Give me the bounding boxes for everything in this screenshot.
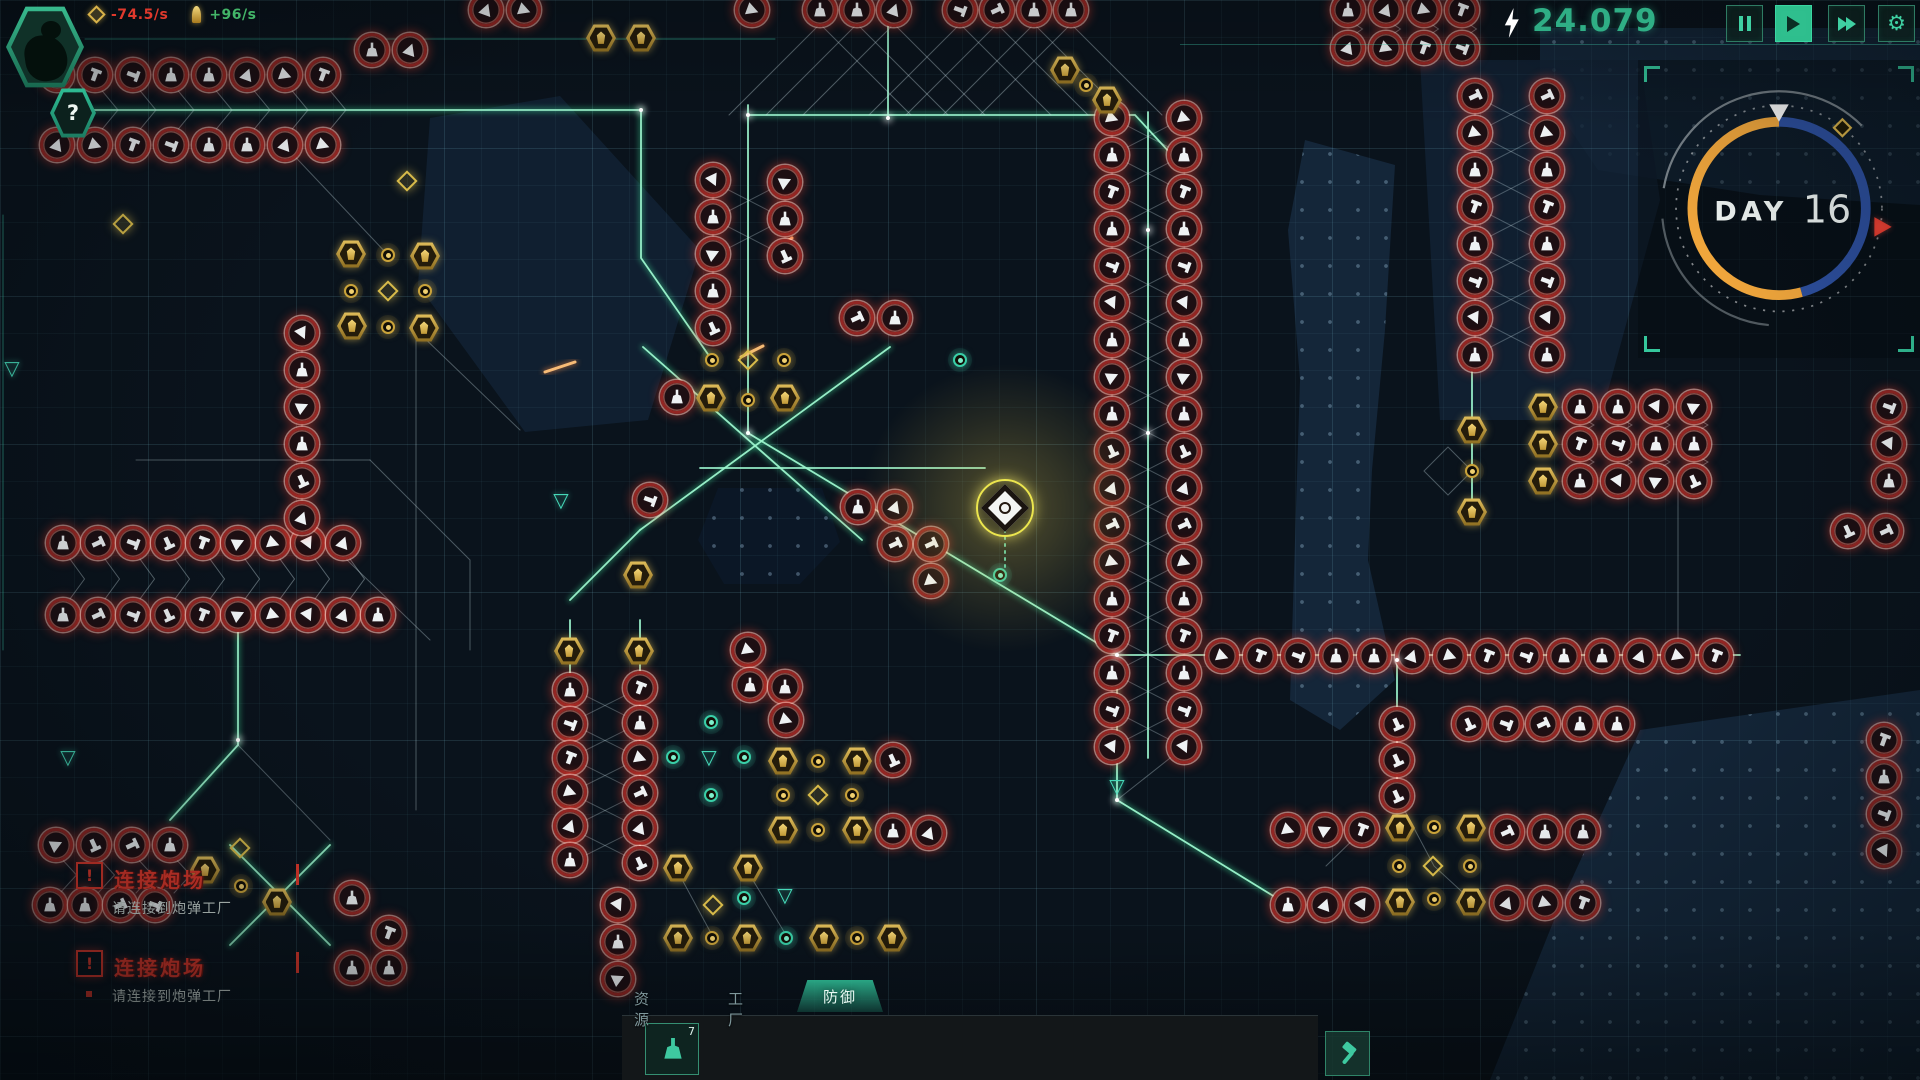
- mine-node[interactable]: [842, 746, 872, 776]
- turret-node[interactable]: [1677, 390, 1711, 424]
- mine-node[interactable]: [663, 853, 693, 883]
- mine-node[interactable]: [624, 636, 654, 666]
- turret-node[interactable]: [1167, 212, 1201, 246]
- ore-nugget-icon: [1466, 423, 1479, 437]
- mine-node[interactable]: [1457, 415, 1487, 445]
- turret-node[interactable]: [1433, 639, 1467, 673]
- turret-node[interactable]: [46, 526, 80, 560]
- turret-node[interactable]: [116, 526, 150, 560]
- turret-node[interactable]: [115, 828, 149, 862]
- turret-node[interactable]: [1095, 286, 1129, 320]
- mine-node[interactable]: [1385, 813, 1415, 843]
- turret-node[interactable]: [186, 598, 220, 632]
- turret-node[interactable]: [1380, 779, 1414, 813]
- turret-node[interactable]: [256, 526, 290, 560]
- mine-node[interactable]: [626, 23, 656, 53]
- turret-node[interactable]: [306, 58, 340, 92]
- turret-node[interactable]: [1281, 639, 1315, 673]
- turret-node[interactable]: [1530, 190, 1564, 224]
- turret-node[interactable]: [1167, 471, 1201, 505]
- turret-node[interactable]: [769, 703, 803, 737]
- turret-node[interactable]: [1528, 886, 1562, 920]
- turret-node[interactable]: [1407, 0, 1441, 27]
- mine-node[interactable]: [336, 239, 366, 269]
- turret-glyph-icon: [1683, 470, 1704, 491]
- turret-node[interactable]: [1458, 116, 1492, 150]
- relay-node-gold[interactable]: [1079, 78, 1093, 92]
- turret-node[interactable]: [1639, 427, 1673, 461]
- turret-node[interactable]: [1490, 886, 1524, 920]
- relay-node-gold[interactable]: [381, 320, 395, 334]
- turret-node[interactable]: [1167, 101, 1201, 135]
- turret-node[interactable]: [151, 598, 185, 632]
- turret-node[interactable]: [1095, 619, 1129, 653]
- turret-node[interactable]: [1167, 360, 1201, 394]
- turret-node[interactable]: [1452, 707, 1486, 741]
- turret-node[interactable]: [154, 128, 188, 162]
- turret-node[interactable]: [1563, 390, 1597, 424]
- turret-node[interactable]: [1308, 813, 1342, 847]
- relay-node-gold[interactable]: [811, 823, 825, 837]
- turret-node[interactable]: [1095, 323, 1129, 357]
- relay-node-gold[interactable]: [381, 248, 395, 262]
- turret-node[interactable]: [153, 828, 187, 862]
- mine-node[interactable]: [586, 23, 616, 53]
- turret-glyph-icon: [47, 135, 68, 156]
- ore-nugget-icon: [632, 568, 645, 582]
- warning-item[interactable]: ! 连接炮场 请连接到炮弹工厂: [76, 862, 406, 926]
- warning-item[interactable]: ! 连接炮场 请连接到炮弹工厂: [76, 950, 406, 1014]
- turret-node[interactable]: [696, 274, 730, 308]
- relay-node-gold[interactable]: [850, 931, 864, 945]
- turret-node[interactable]: [660, 380, 694, 414]
- relay-node-gold[interactable]: [418, 284, 432, 298]
- tab-defense[interactable]: 防御: [797, 980, 883, 1012]
- turret-node[interactable]: [1601, 390, 1635, 424]
- turret-node[interactable]: [1054, 0, 1088, 27]
- turret-node[interactable]: [1458, 79, 1492, 113]
- turret-node[interactable]: [1271, 888, 1305, 922]
- turret-node[interactable]: [1167, 619, 1201, 653]
- mine-node[interactable]: [1050, 55, 1080, 85]
- turret-glyph-icon: [161, 135, 182, 156]
- turret-node[interactable]: [326, 598, 360, 632]
- turret-node[interactable]: [285, 390, 319, 424]
- tab-resources[interactable]: 资源: [634, 988, 651, 1030]
- turret-node[interactable]: [768, 239, 802, 273]
- turret-glyph-icon: [1386, 749, 1407, 770]
- turret-node[interactable]: [1872, 427, 1906, 461]
- turret-glyph-icon: [163, 67, 179, 83]
- turret-node[interactable]: [192, 128, 226, 162]
- turret-node[interactable]: [601, 888, 635, 922]
- turret-node[interactable]: [39, 828, 73, 862]
- mine-node[interactable]: [1385, 887, 1415, 917]
- mine-node[interactable]: [1456, 887, 1486, 917]
- turret-node[interactable]: [469, 0, 503, 27]
- turret-node[interactable]: [943, 0, 977, 27]
- build-bar: 7: [622, 1015, 1318, 1080]
- turret-node[interactable]: [623, 741, 657, 775]
- turret-node[interactable]: [1017, 0, 1051, 27]
- turret-node[interactable]: [1319, 639, 1353, 673]
- turret-node[interactable]: [1458, 227, 1492, 261]
- turret-node[interactable]: [1639, 464, 1673, 498]
- turret-node[interactable]: [553, 707, 587, 741]
- tab-factory[interactable]: 工厂: [728, 988, 745, 1030]
- turret-node[interactable]: [1867, 723, 1901, 757]
- turret-node[interactable]: [1547, 639, 1581, 673]
- ore-nugget-icon: [1394, 821, 1407, 835]
- turret-node[interactable]: [151, 526, 185, 560]
- turret-glyph-icon: [400, 40, 421, 61]
- turret-node[interactable]: [876, 814, 910, 848]
- turret-node[interactable]: [1867, 834, 1901, 868]
- turret-node[interactable]: [221, 598, 255, 632]
- turret-node[interactable]: [1095, 730, 1129, 764]
- turret-node[interactable]: [81, 598, 115, 632]
- mine-node[interactable]: [410, 241, 440, 271]
- turret-node[interactable]: [154, 58, 188, 92]
- turret-node[interactable]: [1566, 815, 1600, 849]
- mine-node[interactable]: [1456, 813, 1486, 843]
- turret-node[interactable]: [1867, 760, 1901, 794]
- turret-node[interactable]: [1600, 707, 1634, 741]
- turret-node[interactable]: [1530, 79, 1564, 113]
- turret-glyph-icon: [514, 0, 535, 20]
- turret-node[interactable]: [507, 0, 541, 27]
- turret-node[interactable]: [1205, 639, 1239, 673]
- turret-node[interactable]: [116, 128, 150, 162]
- mine-node[interactable]: [733, 853, 763, 883]
- mine-node[interactable]: [663, 923, 693, 953]
- turret-node[interactable]: [768, 670, 802, 704]
- turret-node[interactable]: [1458, 264, 1492, 298]
- relay-node-gold[interactable]: [1392, 859, 1406, 873]
- turret-node[interactable]: [1167, 249, 1201, 283]
- mine-node[interactable]: [623, 560, 653, 590]
- turret-node[interactable]: [553, 673, 587, 707]
- turret-node[interactable]: [1095, 175, 1129, 209]
- turret-node[interactable]: [1380, 707, 1414, 741]
- mine-node[interactable]: [696, 383, 726, 413]
- turret-node[interactable]: [1585, 639, 1619, 673]
- turret-node[interactable]: [1167, 730, 1201, 764]
- turret-node[interactable]: [1095, 138, 1129, 172]
- turret-node[interactable]: [1167, 582, 1201, 616]
- mine-node[interactable]: [877, 923, 907, 953]
- turret-node[interactable]: [840, 0, 874, 27]
- turret-node[interactable]: [1369, 0, 1403, 27]
- turret-node[interactable]: [81, 526, 115, 560]
- turret-node[interactable]: [1345, 813, 1379, 847]
- turret-node[interactable]: [696, 200, 730, 234]
- mine-node[interactable]: [337, 311, 367, 341]
- turret-node[interactable]: [1623, 639, 1657, 673]
- mine-node[interactable]: [768, 815, 798, 845]
- relay-node-teal[interactable]: [737, 750, 751, 764]
- turret-node[interactable]: [1563, 464, 1597, 498]
- turret-node[interactable]: [553, 843, 587, 877]
- turret-node[interactable]: [393, 33, 427, 67]
- turret-node[interactable]: [1869, 514, 1903, 548]
- turret-node[interactable]: [731, 633, 765, 667]
- turret-node[interactable]: [186, 526, 220, 560]
- turret-node[interactable]: [78, 58, 112, 92]
- turret-node[interactable]: [1677, 427, 1711, 461]
- turret-node[interactable]: [733, 668, 767, 702]
- turret-node[interactable]: [221, 526, 255, 560]
- turret-node[interactable]: [1872, 390, 1906, 424]
- turret-node[interactable]: [1095, 693, 1129, 727]
- settings-button[interactable]: ⚙: [1878, 5, 1915, 42]
- turret-build-slot[interactable]: 7: [645, 1023, 699, 1075]
- ammo-icon: [192, 6, 201, 23]
- relay-node-teal[interactable]: [737, 891, 751, 905]
- relay-node-gold[interactable]: [811, 754, 825, 768]
- turret-node[interactable]: [1167, 508, 1201, 542]
- turret-node[interactable]: [1445, 0, 1479, 27]
- mine-node[interactable]: [770, 383, 800, 413]
- turret-node[interactable]: [1509, 639, 1543, 673]
- turret-node[interactable]: [1167, 397, 1201, 431]
- turret-node[interactable]: [1167, 545, 1201, 579]
- turret-node[interactable]: [623, 811, 657, 845]
- turret-node[interactable]: [1458, 338, 1492, 372]
- turret-node[interactable]: [1530, 301, 1564, 335]
- turret-glyph-icon: [1414, 38, 1435, 59]
- fast-forward-button[interactable]: [1828, 5, 1865, 42]
- turret-node[interactable]: [1271, 813, 1305, 847]
- turret-node[interactable]: [735, 0, 769, 27]
- turret-node[interactable]: [285, 501, 319, 535]
- turret-node[interactable]: [768, 165, 802, 199]
- mine-node[interactable]: [1528, 392, 1558, 422]
- bracket-icon: [1898, 336, 1914, 352]
- turret-node[interactable]: [285, 353, 319, 387]
- turret-node[interactable]: [1331, 31, 1365, 65]
- turret-node[interactable]: [768, 202, 802, 236]
- turret-node[interactable]: [326, 526, 360, 560]
- ore-nugget-icon: [705, 391, 718, 405]
- turret-node[interactable]: [1563, 427, 1597, 461]
- turret-node[interactable]: [1526, 707, 1560, 741]
- turret-node[interactable]: [912, 816, 946, 850]
- turret-node[interactable]: [361, 598, 395, 632]
- turret-node[interactable]: [1601, 427, 1635, 461]
- turret-node[interactable]: [1601, 464, 1635, 498]
- turret-glyph-icon: [629, 852, 650, 873]
- pause-button[interactable]: [1726, 5, 1763, 42]
- mine-node[interactable]: [732, 923, 762, 953]
- relay-node-gold[interactable]: [1465, 464, 1479, 478]
- turret-node[interactable]: [553, 775, 587, 809]
- play-button[interactable]: [1775, 5, 1812, 42]
- line-junction-dot: [1146, 228, 1150, 232]
- turret-node[interactable]: [1407, 31, 1441, 65]
- turret-node[interactable]: [285, 427, 319, 461]
- turret-node[interactable]: [1167, 138, 1201, 172]
- turret-node[interactable]: [1308, 888, 1342, 922]
- turret-node[interactable]: [1445, 31, 1479, 65]
- turret-node[interactable]: [268, 128, 302, 162]
- turret-node[interactable]: [1167, 286, 1201, 320]
- turret-node[interactable]: [1530, 338, 1564, 372]
- turret-node[interactable]: [1167, 656, 1201, 690]
- mine-node[interactable]: [1092, 85, 1122, 115]
- day-label: DAY: [1714, 196, 1787, 227]
- relay-node-gold[interactable]: [845, 788, 859, 802]
- turret-node[interactable]: [1095, 212, 1129, 246]
- turret-node[interactable]: [1095, 360, 1129, 394]
- turret-node[interactable]: [1357, 639, 1391, 673]
- turret-node[interactable]: [696, 163, 730, 197]
- turret-node[interactable]: [633, 483, 667, 517]
- turret-node[interactable]: [77, 828, 111, 862]
- turret-node[interactable]: [696, 237, 730, 271]
- turret-node[interactable]: [840, 301, 874, 335]
- turret-glyph-icon: [123, 135, 144, 156]
- mine-node[interactable]: [554, 636, 584, 666]
- turret-node[interactable]: [1369, 31, 1403, 65]
- turret-glyph-icon: [263, 533, 284, 554]
- turret-node[interactable]: [601, 962, 635, 996]
- turret-node[interactable]: [623, 846, 657, 880]
- turret-node[interactable]: [1458, 190, 1492, 224]
- turret-node[interactable]: [1639, 390, 1673, 424]
- turret-node[interactable]: [1243, 639, 1277, 673]
- turret-node[interactable]: [285, 316, 319, 350]
- turret-node[interactable]: [1458, 301, 1492, 335]
- turret-node[interactable]: [1471, 639, 1505, 673]
- turret-glyph-icon: [774, 245, 795, 266]
- turret-node[interactable]: [230, 128, 264, 162]
- turret-node[interactable]: [980, 0, 1014, 27]
- turret-glyph-icon: [1351, 894, 1372, 915]
- turret-glyph-icon: [1102, 700, 1123, 721]
- turret-node[interactable]: [230, 58, 264, 92]
- turret-node[interactable]: [1530, 227, 1564, 261]
- turret-node[interactable]: [623, 706, 657, 740]
- turret-node[interactable]: [1566, 886, 1600, 920]
- turret-node[interactable]: [1095, 249, 1129, 283]
- turret-node[interactable]: [256, 598, 290, 632]
- turret-glyph-icon: [1874, 804, 1895, 825]
- mine-node[interactable]: [1528, 429, 1558, 459]
- relay-node-gold[interactable]: [1427, 892, 1441, 906]
- turret-node[interactable]: [877, 0, 911, 27]
- relay-node-gold[interactable]: [705, 931, 719, 945]
- turret-node[interactable]: [33, 888, 67, 922]
- mine-node[interactable]: [809, 923, 839, 953]
- turret-node[interactable]: [1395, 639, 1429, 673]
- mine-node[interactable]: [1528, 466, 1558, 496]
- relay-node-teal[interactable]: [666, 750, 680, 764]
- turret-glyph-icon: [1104, 147, 1120, 163]
- turret-node[interactable]: [878, 301, 912, 335]
- build-hammer-button[interactable]: [1325, 1031, 1370, 1076]
- mine-node[interactable]: [1457, 497, 1487, 527]
- turret-node[interactable]: [876, 743, 910, 777]
- turret-node[interactable]: [116, 58, 150, 92]
- resource-readouts: -74.5/s +96/s: [90, 6, 256, 23]
- turret-node[interactable]: [1699, 639, 1733, 673]
- turret-node[interactable]: [1331, 0, 1365, 27]
- mine-node[interactable]: [409, 313, 439, 343]
- turret-node[interactable]: [1528, 815, 1562, 849]
- turret-node[interactable]: [1095, 656, 1129, 690]
- turret-glyph-icon: [1176, 591, 1192, 607]
- ore-rate: -74.5/s: [111, 7, 168, 23]
- turret-node[interactable]: [1530, 264, 1564, 298]
- relay-node-gold[interactable]: [344, 284, 358, 298]
- relay-node-gold[interactable]: [1463, 859, 1477, 873]
- relay-node-gold[interactable]: [776, 788, 790, 802]
- turret-node[interactable]: [1167, 693, 1201, 727]
- turret-node[interactable]: [192, 58, 226, 92]
- turret-node[interactable]: [355, 33, 389, 67]
- turret-glyph-icon: [1875, 520, 1896, 541]
- turret-glyph-icon: [157, 532, 178, 553]
- mine-node[interactable]: [768, 746, 798, 776]
- relay-node-gold[interactable]: [777, 353, 791, 367]
- turret-glyph-icon: [1104, 665, 1120, 681]
- turret-node[interactable]: [1167, 323, 1201, 357]
- turret-node[interactable]: [285, 464, 319, 498]
- turret-node[interactable]: [1530, 153, 1564, 187]
- turret-node[interactable]: [1167, 434, 1201, 468]
- turret-glyph-icon: [607, 894, 628, 915]
- turret-node[interactable]: [1867, 797, 1901, 831]
- turret-node[interactable]: [803, 0, 837, 27]
- turret-node[interactable]: [1530, 116, 1564, 150]
- relay-node-gold[interactable]: [1427, 820, 1441, 834]
- turret-node[interactable]: [291, 598, 325, 632]
- turret-node[interactable]: [1345, 888, 1379, 922]
- turret-node[interactable]: [1661, 639, 1695, 673]
- turret-node[interactable]: [623, 776, 657, 810]
- turret-node[interactable]: [696, 311, 730, 345]
- relay-node-gold[interactable]: [741, 393, 755, 407]
- turret-node[interactable]: [553, 809, 587, 843]
- relay-node-teal[interactable]: [704, 715, 718, 729]
- turret-node[interactable]: [116, 598, 150, 632]
- marker-triangle-icon: ▽: [1109, 776, 1124, 796]
- turret-node[interactable]: [1167, 175, 1201, 209]
- relay-node-gold[interactable]: [705, 353, 719, 367]
- turret-node[interactable]: [1458, 153, 1492, 187]
- turret-glyph-icon: [560, 816, 581, 837]
- turret-node[interactable]: [1677, 464, 1711, 498]
- turret-glyph-icon: [1537, 824, 1553, 840]
- turret-node[interactable]: [623, 671, 657, 705]
- turret-node[interactable]: [1380, 743, 1414, 777]
- turret-node[interactable]: [1489, 707, 1523, 741]
- turret-node[interactable]: [601, 925, 635, 959]
- turret-node[interactable]: [1831, 514, 1865, 548]
- turret-node[interactable]: [553, 741, 587, 775]
- turret-glyph-icon: [1532, 713, 1553, 734]
- turret-node[interactable]: [306, 128, 340, 162]
- relay-node-teal[interactable]: [704, 788, 718, 802]
- relay-node-teal[interactable]: [779, 931, 793, 945]
- turret-node[interactable]: [268, 58, 302, 92]
- mine-node[interactable]: [842, 815, 872, 845]
- turret-node[interactable]: [1563, 707, 1597, 741]
- turret-node[interactable]: [46, 598, 80, 632]
- turret-node[interactable]: [1490, 815, 1524, 849]
- turret-node[interactable]: [1872, 464, 1906, 498]
